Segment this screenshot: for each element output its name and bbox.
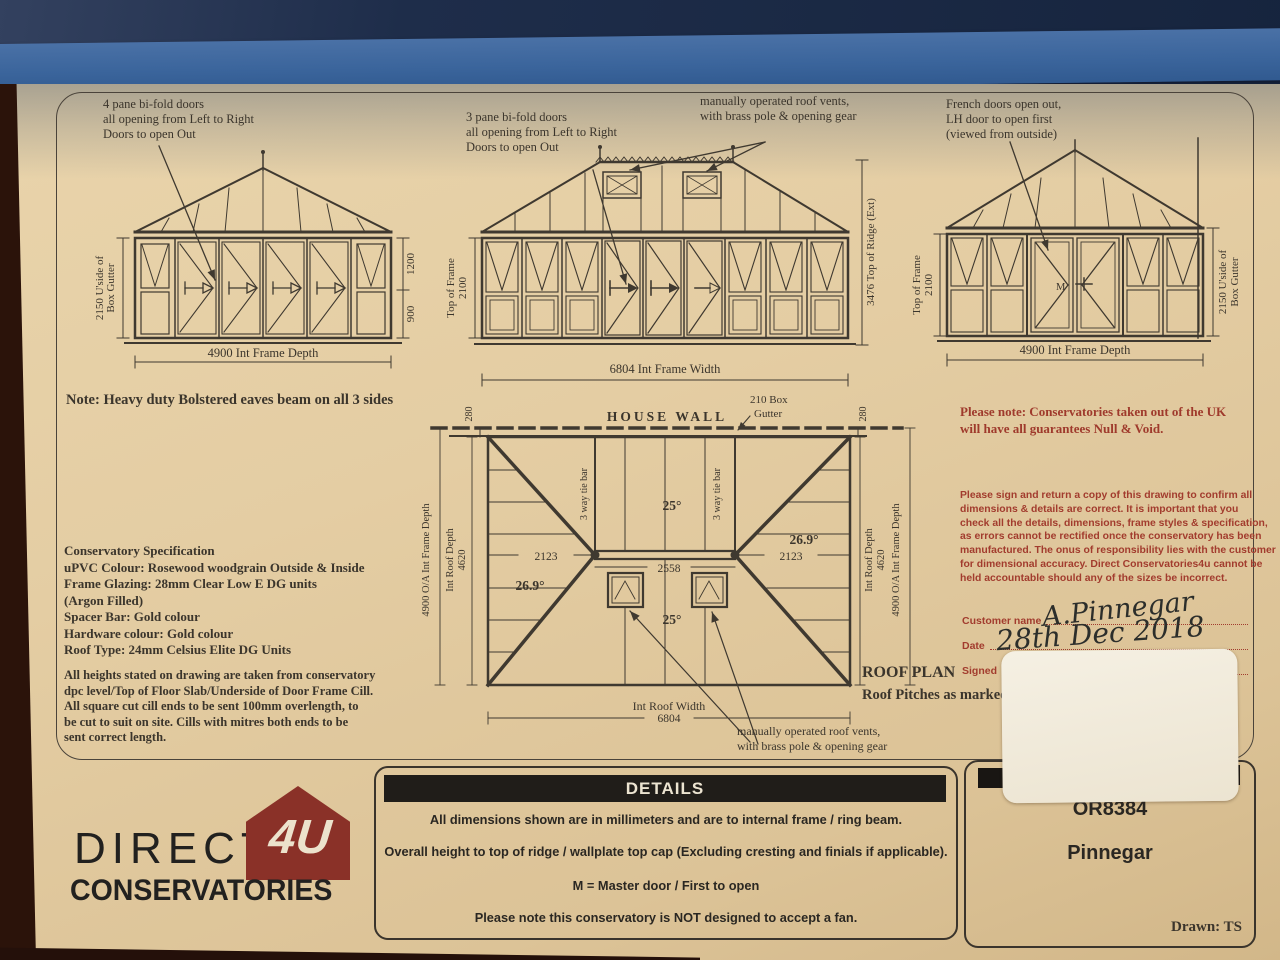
dim-280-right: 280 [858, 407, 869, 422]
house-wall-label: HOUSE WALL [607, 409, 727, 424]
sign-and-return-note: Please sign and return a copy of this dr… [960, 489, 1276, 586]
pitch-25-bottom: 25° [663, 612, 682, 627]
details-line-2: Overall height to top of ridge / wallpla… [376, 844, 956, 859]
elev-c-annotation: French doors open out, LH door to open f… [946, 97, 1116, 142]
details-box: DETAILS All dimensions shown are in mill… [374, 766, 958, 940]
dim-6804-width: 6804 Int Frame Width [610, 362, 721, 376]
order-customer: Pinnegar [966, 842, 1254, 865]
dim-roof-depth-right: Int Roof Depth [864, 527, 875, 591]
photo-of-drawing: 4 pane bi-fold doors all opening from Le… [0, 0, 1280, 960]
dim-1200: 1200 [405, 253, 417, 276]
logo-word-conservatories: CONSERVATORIES [70, 874, 332, 908]
dim-3476-ridge: 3476 Top of Ridge (Ext) [865, 198, 877, 306]
date-label: Date [962, 640, 985, 652]
dim-4900-depth: 4900 Int Frame Depth [1020, 343, 1131, 357]
dim-4620-right: 4620 [876, 550, 887, 571]
roof-plan-title: ROOF PLAN [862, 664, 955, 682]
dim-roof-width-label: Int Roof Width [633, 699, 706, 713]
dim-oa-depth-right: 4900 O/A Int Frame Depth [891, 503, 902, 617]
pitch-269-right: 26.9° [789, 532, 818, 547]
elevation-side-left-drawing: 2150 U'side of Box Gutter 1200 900 4900 … [95, 140, 425, 380]
tie-bar-right-label: 3 way tie bar [712, 467, 723, 520]
dim-900: 900 [405, 305, 417, 322]
dim-2558-ridge: 2558 [658, 563, 681, 575]
roof-plan-drawing: HOUSE WALL 210 Box Gutter 280 280 2123 2… [420, 390, 920, 770]
elevation-front-drawing: Top of Frame 2100 3476 Top of Ridge (Ext… [445, 140, 885, 390]
sticker-over-signature [1001, 649, 1239, 803]
details-line-3: M = Master door / First to open [376, 878, 956, 893]
dim-2123-left: 2123 [535, 551, 558, 563]
logo-word-direct: DIRECT [74, 824, 274, 874]
roof-vents-annotation: manually operated roof vents, with brass… [737, 724, 887, 754]
uk-guarantee-note: Please note: Conservatories taken out of… [960, 403, 1226, 437]
details-title-bar: DETAILS [384, 775, 946, 802]
drawn-by: Drawn: TS [1171, 919, 1242, 936]
heights-note: All heights stated on drawing are taken … [64, 668, 375, 746]
dim-roof-depth-left: Int Roof Depth [445, 527, 456, 591]
details-line-4: Please note this conservatory is NOT des… [376, 910, 956, 925]
dim-top-of-frame: Top of Frame [911, 255, 923, 315]
dim-oa-depth-left: 4900 O/A Int Frame Depth [421, 503, 432, 617]
elev-b-vents-annotation: manually operated roof vents, with brass… [700, 94, 880, 124]
signed-label: Signed [962, 665, 997, 677]
dim-2150-line2: Box Gutter [105, 263, 117, 313]
pitch-269-left: 26.9° [515, 578, 544, 593]
dim-2150-line2: Box Gutter [1229, 257, 1241, 307]
dim-4900-depth: 4900 Int Frame Depth [208, 346, 319, 360]
dim-top-of-frame: Top of Frame [445, 258, 457, 318]
pitch-25-top: 25° [663, 498, 682, 513]
elevation-side-right-drawing: M Top of Frame 2100 2150 U'side of Box G… [910, 138, 1280, 378]
roof-plan-subtitle: Roof Pitches as marked [862, 687, 1008, 704]
master-door-label: M [1056, 282, 1066, 293]
dim-2123-right: 2123 [780, 551, 803, 563]
logo-badge-4u: 4U [249, 810, 351, 865]
dim-2100: 2100 [923, 274, 935, 297]
box-gutter-label-2: Gutter [754, 408, 782, 420]
registration-mark-left [978, 768, 1004, 788]
dim-280-left: 280 [464, 407, 475, 422]
dim-2150-line1: 2150 U'side of [1217, 250, 1229, 315]
box-gutter-label-1: 210 Box [750, 394, 788, 406]
dim-2100: 2100 [457, 277, 469, 300]
elev-a-annotation: 4 pane bi-fold doors all opening from Le… [103, 97, 293, 142]
details-line-1: All dimensions shown are in millimeters … [376, 812, 956, 827]
dim-4620-left: 4620 [457, 550, 468, 571]
dim-6804-roof: 6804 [658, 713, 681, 725]
tie-bar-left-label: 3 way tie bar [579, 467, 590, 520]
conservatory-specification: Conservatory Specification uPVC Colour: … [64, 543, 364, 659]
note-eaves-beam: Note: Heavy duty Bolstered eaves beam on… [66, 392, 393, 409]
